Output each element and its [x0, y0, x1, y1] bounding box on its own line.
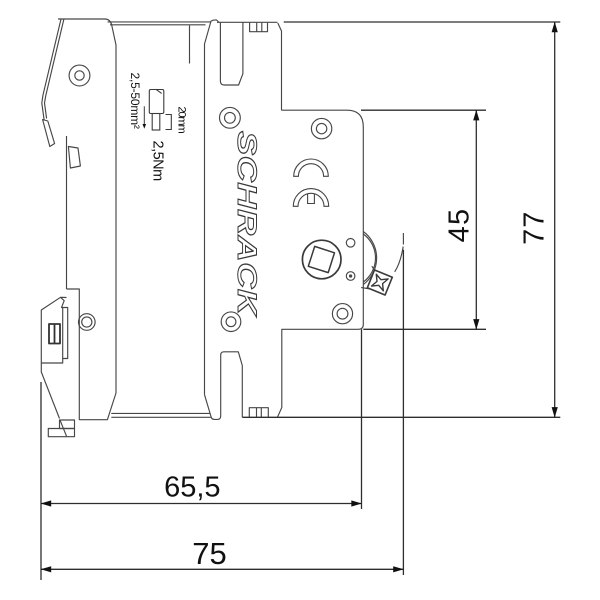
svg-text:2,5Nm: 2,5Nm: [150, 141, 166, 182]
svg-text:20mm: 20mm: [176, 107, 188, 134]
svg-text:45: 45: [444, 208, 476, 243]
svg-text:77: 77: [519, 211, 551, 245]
svg-text:2,5-50mm²: 2,5-50mm²: [128, 73, 142, 129]
svg-text:65,5: 65,5: [164, 472, 220, 504]
svg-text:SCHRACK: SCHRACK: [232, 131, 262, 317]
svg-text:75: 75: [192, 536, 226, 571]
